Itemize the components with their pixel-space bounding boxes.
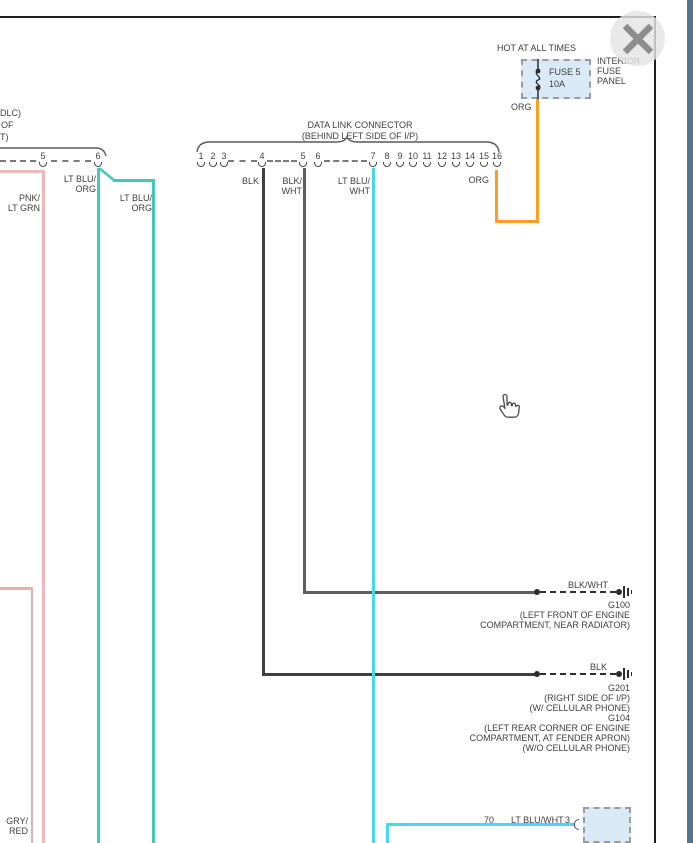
g100-text: G100 (LEFT FRONT OF ENGINE COMPARTMENT, … [430, 600, 630, 630]
pin-terminal [466, 162, 474, 167]
pin-terminal [258, 162, 266, 167]
left-pin-5: 5 [35, 151, 51, 161]
pin-terminal [480, 162, 488, 167]
wire-blkwht-horizontal [303, 591, 537, 594]
hot-at-all-times-label: HOT AT ALL TIMES [497, 43, 576, 53]
pin-terminal [396, 162, 404, 167]
pin-terminal [299, 162, 307, 167]
wire-blkwht-vertical [303, 168, 306, 593]
wire-blk-vertical [262, 168, 265, 675]
fuse-panel-name-line: FUSE [597, 66, 640, 76]
wire-ltbluwht-vertical [372, 168, 375, 843]
wire-ltbluorg2-horizontal [113, 179, 154, 182]
wiring-diagram-page: HOT AT ALL TIMES FUSE 5 10A INTERIOR FUS… [0, 0, 693, 843]
ltbluorg2-wire-label-l1: LT BLU/ [92, 193, 152, 203]
wire-org-horizontal [495, 220, 538, 223]
blkwht-wire-label-l2: WHT [242, 186, 302, 196]
bottom-pin-terminal [574, 819, 579, 830]
dlc-title: DATA LINK CONNECTOR [260, 120, 460, 130]
pnk-wire-label-l1: PNK/ [0, 193, 40, 203]
fuse-name-label: FUSE 5 [549, 67, 581, 77]
pin-terminal [220, 162, 228, 167]
splice-dot [616, 589, 622, 595]
dlc-pin-5: 5 [295, 151, 311, 161]
gryred-wire-label: GRY/ RED [0, 816, 28, 836]
ltbluorg1-wire-label: LT BLU/ ORG [36, 174, 96, 194]
wire-blk-horizontal [262, 673, 537, 676]
g104-location-l1: (LEFT REAR CORNER OF ENGINE [430, 723, 630, 733]
pin-row-dashes [0, 160, 36, 162]
ground-symbol-bar [631, 672, 633, 676]
g201-wire-label: BLK [547, 662, 607, 672]
wire-gryred-vertical [31, 587, 34, 843]
pin-terminal [438, 162, 446, 167]
ground-symbol-bar [623, 668, 625, 680]
pin-terminal [409, 162, 417, 167]
wire-ltbluorg2-vertical [152, 179, 155, 843]
fuse-symbol [528, 57, 548, 101]
ground-dashed-lead [540, 673, 616, 675]
blkwht-wire-label-l1: BLK/ [242, 176, 302, 186]
left-connector-label-fragment: DLC) [0, 108, 21, 118]
splice-dot [616, 671, 622, 677]
pin-terminal [197, 162, 205, 167]
left-connector-label-fragment: OF [1, 120, 14, 130]
pin-terminal [369, 162, 377, 167]
ground-symbol-bar [627, 670, 629, 678]
ltbluorg2-wire-label-l2: ORG [92, 203, 152, 213]
pin-terminal [452, 162, 460, 167]
wire-org-riser [495, 170, 498, 222]
g201-id: G201 [430, 683, 630, 693]
fuse-panel-name-line: PANEL [597, 76, 640, 86]
pnk-wire-label-l2: LT GRN [0, 203, 40, 213]
wire-pnk-vertical [42, 170, 45, 843]
hand-cursor-icon [494, 392, 520, 422]
g100-location-l2: COMPARTMENT, NEAR RADIATOR) [430, 620, 630, 630]
gryred-wire-label-l2: RED [0, 826, 28, 836]
blkwht-wire-label: BLK/ WHT [242, 176, 302, 196]
pin-terminal [423, 162, 431, 167]
bottom-pin-number: 3 [565, 815, 570, 825]
wire-pnk-horizontal [0, 170, 44, 173]
diagram-top-border [0, 16, 656, 18]
ltbluwht-wire-label: LT BLU/ WHT [310, 176, 370, 196]
dlc-pin-16: 16 [489, 151, 505, 161]
fuse-rating-label: 10A [549, 79, 565, 89]
close-icon[interactable] [620, 21, 656, 57]
g100-location-l1: (LEFT FRONT OF ENGINE [430, 610, 630, 620]
ltbluorg2-wire-label: LT BLU/ ORG [92, 193, 152, 213]
pin-row-dashes [324, 160, 367, 162]
ltbluwht-wire-label-l1: LT BLU/ [310, 176, 370, 186]
pin-terminal [383, 162, 391, 167]
pin-row-dashes [228, 160, 257, 162]
ground-dashed-lead [540, 591, 616, 593]
ground-symbol-bar [623, 586, 625, 598]
g104-variant: (W/O CELLULAR PHONE) [430, 743, 630, 753]
scrollbar-strip[interactable] [687, 0, 693, 843]
pnk-wire-label: PNK/ LT GRN [0, 193, 40, 213]
g201-location: (RIGHT SIDE OF I/P) [430, 693, 630, 703]
wire-bottom-ltbluwht-vertical [386, 823, 389, 843]
left-connector-label-fragment: T) [0, 132, 9, 142]
ltbluorg1-wire-label-l2: ORG [36, 184, 96, 194]
ground-symbol-bar [627, 588, 629, 596]
ltbluorg1-wire-label-l1: LT BLU/ [36, 174, 96, 184]
bottom-circuit-number: 70 [484, 815, 494, 825]
g100-id: G100 [430, 600, 630, 610]
ground-symbol-bar [631, 590, 633, 594]
bottom-wire-color-label: LT BLU/WHT [511, 815, 564, 825]
bottom-connector-box [583, 807, 631, 843]
g104-location-l2: COMPARTMENT, AT FENDER APRON) [430, 733, 630, 743]
pin-terminal [39, 162, 47, 167]
ltbluwht-wire-label-l2: WHT [310, 186, 370, 196]
wire-org-vertical [536, 97, 539, 223]
g104-id: G104 [430, 713, 630, 723]
diagram-right-border [654, 16, 656, 843]
pin-terminal [314, 162, 322, 167]
pin-terminal [209, 162, 217, 167]
left-pin-6: 6 [90, 151, 106, 161]
pin-row-dashes [267, 160, 297, 162]
org-wire-label-fuse: ORG [511, 102, 532, 112]
g201-variant: (W/ CELLULAR PHONE) [430, 703, 630, 713]
gryred-wire-label-l1: GRY/ [0, 816, 28, 826]
pin-row-dashes [51, 160, 91, 162]
pin-terminal [493, 162, 501, 167]
wire-ltbluorg1-vertical [97, 168, 100, 843]
g100-wire-label: BLK/WHT [520, 580, 608, 590]
org-wire-label-pin16: ORG [429, 175, 489, 185]
dlc-pin-11: 11 [419, 151, 435, 161]
g201-text: G201 (RIGHT SIDE OF I/P) (W/ CELLULAR PH… [430, 683, 630, 753]
wire-gryred-horizontal [0, 587, 33, 590]
